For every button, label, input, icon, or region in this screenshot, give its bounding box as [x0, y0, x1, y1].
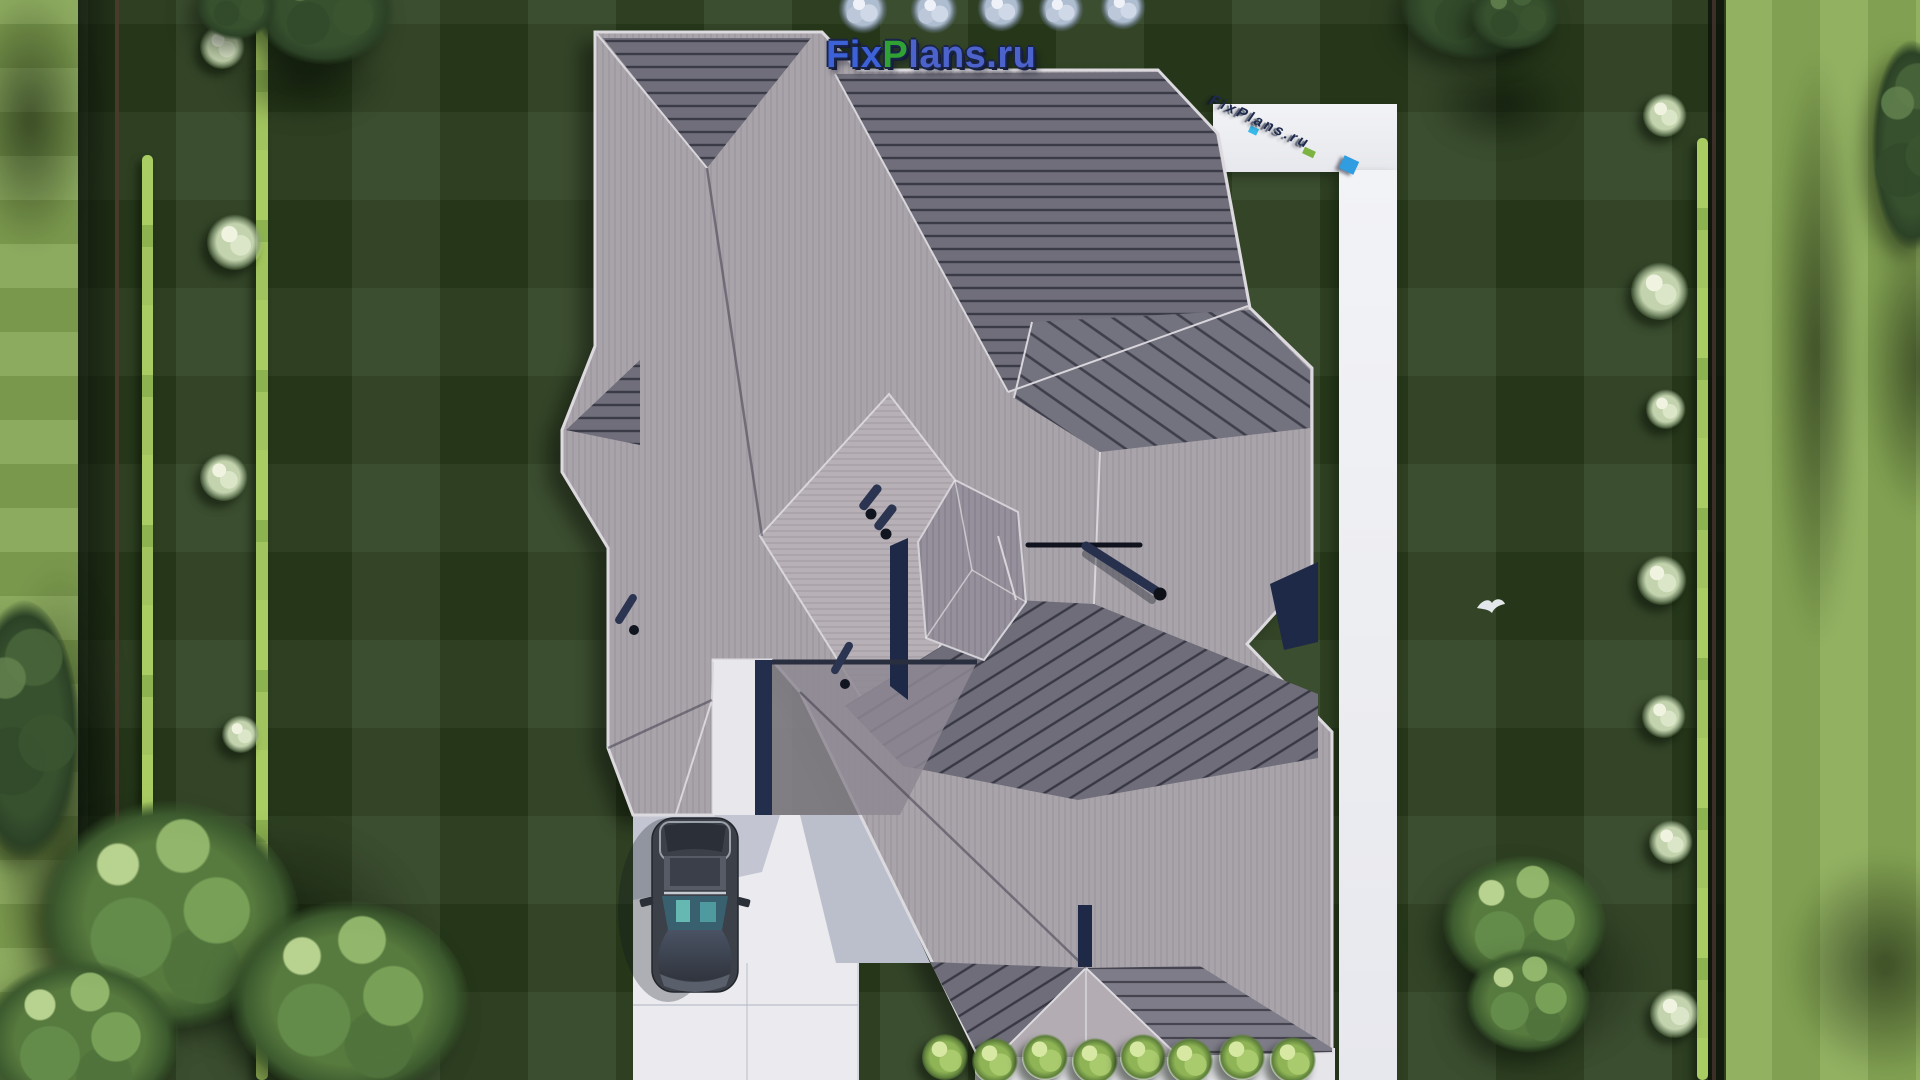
right-border-bush	[1631, 262, 1689, 320]
right-border-bush	[1650, 988, 1700, 1038]
bottom-bush	[1167, 1038, 1213, 1080]
car	[618, 818, 751, 1002]
bottom-bush	[1219, 1034, 1265, 1080]
aerial-render-scene: FixPlans.ru FixPlans.ru	[0, 0, 1920, 1080]
left-border-bush	[207, 214, 263, 270]
fixplans-logo: FixPlans.ru	[826, 34, 1036, 77]
car-windshield	[662, 896, 728, 930]
left-border-bush	[200, 453, 248, 501]
left-border-bush	[222, 715, 260, 753]
right-border-bush	[1649, 820, 1693, 864]
right-border-bush	[1643, 93, 1687, 137]
shadow-wedge	[890, 538, 908, 700]
logo-part-fix: Fix	[826, 34, 882, 76]
bottom-bush	[922, 1034, 968, 1080]
right-border-bush	[1646, 389, 1686, 429]
right-border-bush	[1642, 694, 1686, 738]
bottom-bush	[1022, 1034, 1068, 1080]
logo-part-rest: lans.ru	[908, 34, 1036, 76]
right-border-bush	[1637, 555, 1687, 605]
bottom-bush	[1120, 1034, 1166, 1080]
bird-icon	[1477, 599, 1505, 613]
bottom-bush	[1072, 1038, 1118, 1080]
bottom-bush	[972, 1038, 1018, 1080]
shadow-wedge	[1078, 905, 1092, 967]
logo-part-p: P	[882, 34, 908, 76]
courtyard-sunlit-wall	[713, 660, 755, 815]
courtyard-shadow-wall	[755, 660, 772, 815]
bottom-bush	[1270, 1037, 1316, 1080]
